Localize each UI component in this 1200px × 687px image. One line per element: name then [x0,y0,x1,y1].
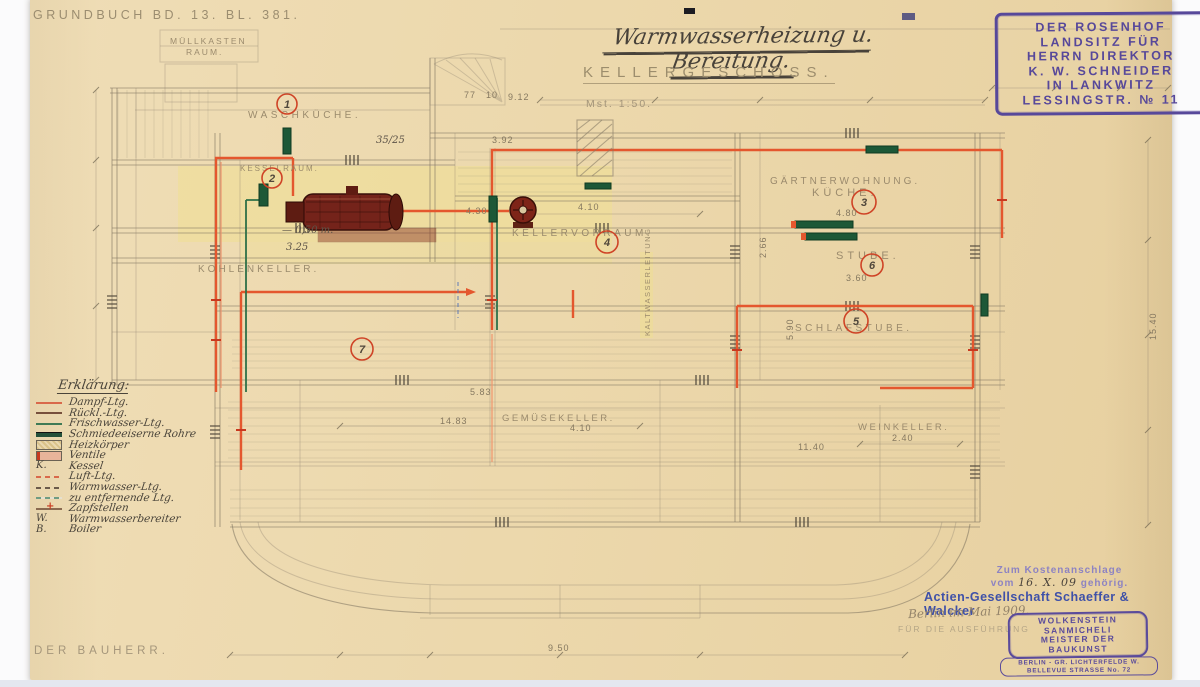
legend-symbol-air-line [36,472,62,481]
svg-text:RAUM.: RAUM. [186,47,223,57]
archive-note: GRUNDBUCH BD. 13. BL. 381. [33,8,300,22]
svg-text:4.10: 4.10 [578,202,600,212]
svg-text:6: 6 [869,260,876,272]
svg-text:9.12: 9.12 [508,92,530,102]
svg-text:14.83: 14.83 [440,416,468,426]
terrace-arcs [232,522,970,618]
owner-stamp-line: IN LANKWITZ [1004,77,1198,93]
ink-mark [902,13,915,20]
svg-text:4: 4 [603,237,610,249]
drawing-subtitle: KELLERGESCHOSS. [583,64,835,81]
cost-estimate-date: 16. X. 09 [1018,576,1077,589]
punch-mark [684,8,695,14]
legend-symbol-return-line [36,408,62,417]
radiator-kueche-2 [805,233,857,240]
svg-text:10: 10 [486,90,498,100]
scan-edge-strip [0,680,1200,687]
svg-text:3: 3 [861,197,867,209]
legend-symbol-w-letter: W. [36,514,62,523]
svg-text:3.25: 3.25 [286,242,308,253]
svg-text:3.92: 3.92 [492,135,514,145]
svg-text:5.83: 5.83 [470,387,492,397]
room-label-kohlenkeller: KOHLENKELLER. [198,264,319,275]
architect-stamp: WOLKENSTEIN SANMICHELI MEISTER DER BAUKU… [1008,611,1149,659]
legend-symbol-tap-point: + [36,504,62,513]
legend-symbol-freshwater-line [36,419,62,428]
svg-text:9.50: 9.50 [548,643,570,653]
owner-stamp-line: HERRN DIREKTOR [1004,48,1198,64]
room-label-waschkueche: WASCHKÜCHE. [248,109,361,121]
room-label-kellervorraum: KELLERVORRAUM. [512,228,653,239]
owner-stamp-line: K. W. SCHNEIDER [1004,63,1198,79]
room-label-gaertnerwohnung: GÄRTNERWOHNUNG. [770,175,920,187]
svg-text:1: 1 [284,99,290,111]
address-stamp: BERLIN - GR. LICHTERFELDE W. BELLEVUE ST… [1000,656,1158,676]
room-label-stube: STUBE. [836,250,900,262]
legend-symbol-b-letter: B. [36,525,62,534]
svg-text:3.60: 3.60 [846,273,868,283]
legend-symbol-iron-pipe [36,430,62,439]
svg-text:— 0,50 m.: — 0,50 m. [282,225,333,236]
svg-text:5: 5 [853,316,860,328]
svg-text:2.40: 2.40 [892,433,914,443]
bauherr-signature-label: DER BAUHERR. [34,645,169,657]
cost-estimate-stamp: Zum Kostenanschlage vom 16. X. 09 gehöri… [952,565,1167,590]
room-label-weinkeller: WEINKELLER. [858,422,949,433]
svg-text:7: 7 [359,344,366,356]
legend-symbol-valve [36,451,62,460]
svg-text:4.10: 4.10 [570,423,592,433]
svg-text:35/25: 35/25 [376,135,405,146]
owner-stamp-line: DER ROSENHOF [1004,19,1198,35]
svg-text:2: 2 [268,173,275,185]
scale-note: Mst. 1:50. [586,98,652,110]
svg-text:4.30: 4.30 [466,206,488,216]
owner-stamp-line: LESSINGSTR. № 11 [1004,92,1198,108]
svg-text:11.40: 11.40 [798,442,825,452]
svg-text:4.80: 4.80 [836,208,858,218]
pump [510,197,536,228]
legend-symbol-steam-line [36,398,62,407]
svg-text:5.90: 5.90 [785,318,795,340]
radiator-kueche-1 [795,221,853,228]
svg-text:77: 77 [464,90,476,100]
room-label-kueche: KÜCHE. [812,187,878,199]
legend-heading: Erklärung: [57,378,130,394]
legend-symbol-kessel-letter: K. [36,461,62,470]
boiler-door [286,202,304,222]
owner-stamp-line: LANDSITZ FÜR [1004,34,1198,50]
legend-symbol-radiator [36,440,62,449]
room-label-kaltwasser: KALTWASSERLEITUNG [643,228,652,336]
svg-text:2.66: 2.66 [758,236,768,258]
legend: Erklärung: Dampf-Ltg. Rückl.-Ltg. Frisch… [36,374,286,535]
legend-symbol-warmwater-line [36,483,62,492]
owner-stamp: DER ROSENHOF LANDSITZ FÜR HERRN DIREKTOR… [995,11,1200,115]
svg-text:15.40: 15.40 [1148,312,1158,340]
room-label-muellkasten: MÜLLKASTEN [170,36,247,46]
drawing-sheet: MÜLLKASTEN RAUM. WASCHKÜCHE. KESSELRAUM.… [0,0,1200,687]
room-label-gemuesekeller: GEMÜSEKELLER. [502,413,615,424]
